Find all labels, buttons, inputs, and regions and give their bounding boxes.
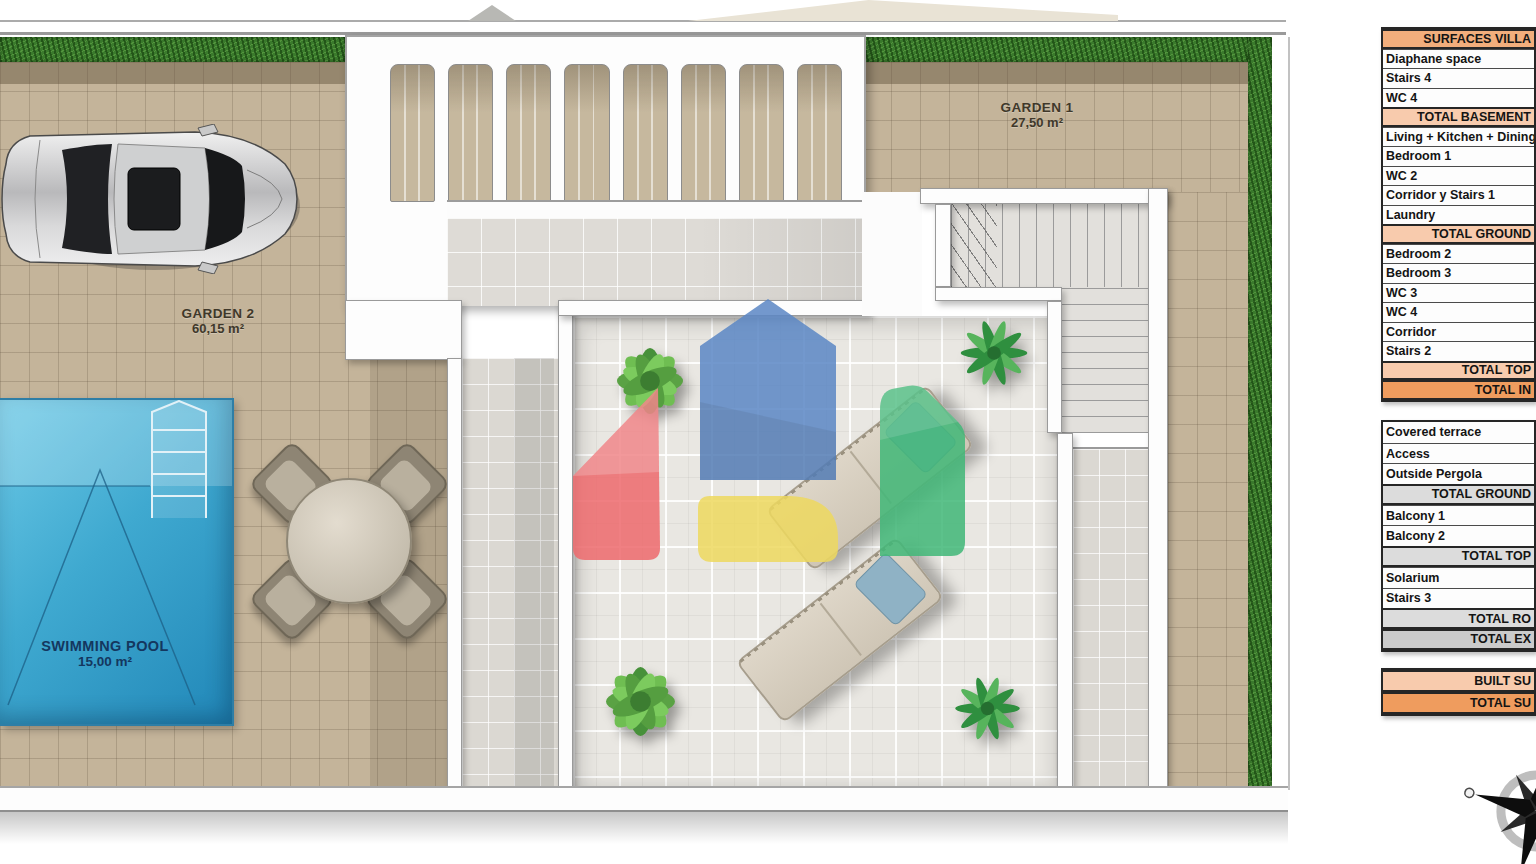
compass-rose-icon [1452,726,1536,864]
table-section-row: TOTAL TOP [1383,546,1534,567]
wall-segment [1057,433,1073,788]
plant-icon [595,326,705,436]
outdoor-dining-set [255,447,440,632]
pool-name: SWIMMING POOL [0,638,210,654]
garden1-area: 27,50 m² [947,115,1127,130]
garden2-label: GARDEN 2 60,15 m² [128,306,308,336]
pool-label: SWIMMING POOL 15,00 m² [0,638,210,669]
garden2-name: GARDEN 2 [128,306,308,321]
pool-area: 15,00 m² [0,654,210,669]
palm-icon [940,661,1035,756]
pool-detail-lines [0,400,232,724]
pergola-slat [739,64,784,202]
stairs-right-flight [1062,287,1148,433]
pergola-slat [448,64,493,202]
paving-shadow-band [862,62,1248,84]
covered-terrace-floor [447,218,866,306]
table-row: Corridor y Stairs 1 [1383,185,1534,205]
walkway-shade [514,358,554,788]
table-section-row: TOTAL SU [1383,692,1534,714]
table-section-row: TOTAL GROUND [1383,484,1534,505]
garden2-area: 60,15 m² [128,321,308,336]
pergola-slat [564,64,609,202]
wall-segment [935,204,951,287]
pergola [345,35,866,306]
lounger-pillow [883,400,958,475]
plan-right-margin [1272,37,1290,790]
right-side-paving [1168,192,1248,788]
table-row: Diaphane space [1383,49,1534,69]
car-top-view [0,124,300,274]
pergola-slat [506,64,551,202]
table-row: Laundry [1383,205,1534,225]
surfaces-villa-table: SURFACES VILLADiaphane spaceStairs 4WC 4… [1381,27,1536,402]
sun-lounger [736,536,945,723]
table-row: Covered terrace [1383,422,1534,443]
side-walkway [1073,447,1148,790]
garden1-name: GARDEN 1 [947,100,1127,115]
plan-bottom-wall [0,786,1288,812]
totals-table: BUILT SUTOTAL SU [1381,668,1536,716]
palm-icon [945,304,1043,402]
access-walkway [462,358,558,788]
table-row: WC 2 [1383,166,1534,186]
wall-segment [1148,188,1168,788]
hedge-top-left [0,37,345,62]
main-terrace [573,316,1057,788]
hedge-top-right [862,37,1248,62]
table-row: Access [1383,443,1534,464]
table-section-row: TOTAL BASEMENT [1383,107,1534,127]
table-row: Solarium [1383,567,1534,588]
garden1-label: GARDEN 1 27,50 m² [947,100,1127,130]
table-section-row: BUILT SU [1383,670,1534,692]
plan-bottom-shadow [0,812,1288,844]
table-row: WC 3 [1383,283,1534,303]
round-table [286,478,412,604]
roof-peak-shape [468,5,516,21]
outside-surfaces-table: Covered terraceAccessOutside PergolaTOTA… [1381,420,1536,652]
table-row: Balcony 2 [1383,525,1534,546]
table-row: WC 4 [1383,302,1534,322]
table-row: Bedroom 2 [1383,244,1534,264]
entrance-area [862,192,922,316]
table-row: Balcony 1 [1383,505,1534,526]
table-row: Outside Pergola [1383,463,1534,484]
pergola-slat [390,64,435,202]
pergola-slats [390,64,842,202]
stairs-upper-flight [951,204,1148,287]
wall-segment [447,358,462,788]
pergola-slat [623,64,668,202]
table-row: Living + Kitchen + Dining [1383,127,1534,147]
table-section-row: SURFACES VILLA [1383,29,1534,49]
table-section-row: TOTAL GROUND [1383,224,1534,244]
swimming-pool: SWIMMING POOL 15,00 m² [0,398,234,726]
table-row: Stairs 3 [1383,588,1534,609]
pergola-slat [797,64,842,202]
page: { "plan": { "garden1": {"name": "GARDEN … [0,0,1536,864]
sun-lounger [766,384,975,571]
table-section-row: TOTAL IN [1383,380,1534,400]
wall-segment [920,188,1168,204]
table-row: Corridor [1383,322,1534,342]
wall-segment [935,287,1062,301]
plant-icon [583,644,698,759]
pergola-slat [681,64,726,202]
table-row: Stairs 4 [1383,68,1534,88]
lounger-pillow [853,552,928,627]
wall-segment [345,300,462,360]
roof-peak-shape [688,0,1118,21]
table-section-row: TOTAL TOP [1383,361,1534,381]
table-row: Bedroom 3 [1383,263,1534,283]
table-row: Bedroom 1 [1383,146,1534,166]
table-section-row: TOTAL RO [1383,608,1534,629]
wall-segment [558,300,870,316]
table-row: WC 4 [1383,88,1534,108]
wall-segment [1047,301,1062,433]
hedge-right [1248,37,1272,790]
table-section-row: TOTAL EX [1383,629,1534,650]
table-row: Stairs 2 [1383,341,1534,361]
wall-segment [558,300,573,788]
